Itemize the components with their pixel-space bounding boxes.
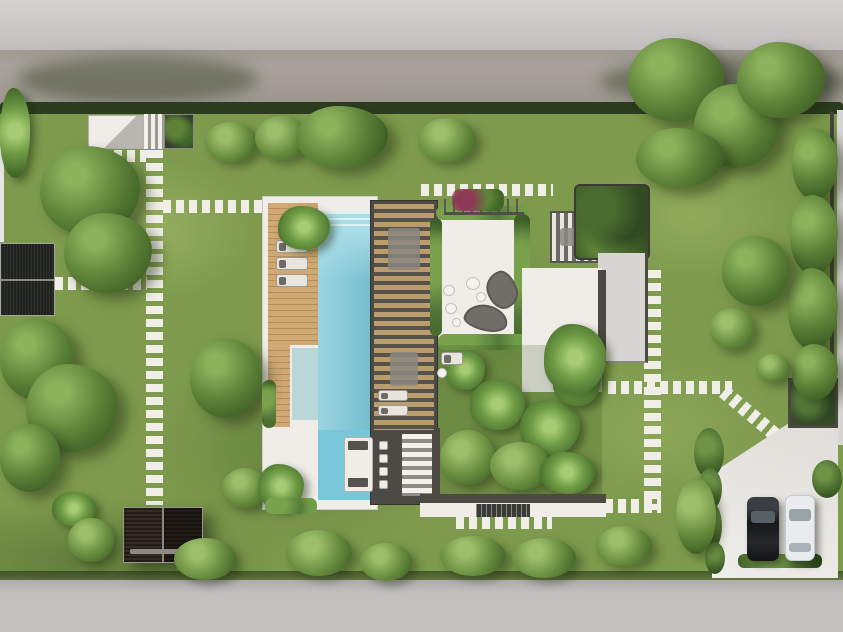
deck-lounger: [378, 405, 408, 416]
garden-stairs: [476, 504, 530, 517]
garden-chaise: [441, 352, 463, 365]
driveway-hedge: [812, 460, 842, 498]
bush: [756, 354, 790, 382]
bottom-bush: [512, 538, 576, 578]
pouf: [452, 318, 461, 327]
path-to-pool-deck: [163, 200, 265, 213]
dining-set-under-pergola: [388, 228, 420, 270]
bar-sink: [348, 441, 368, 450]
driveway-hedge: [705, 542, 725, 574]
path-below-walkway: [456, 516, 552, 529]
swimming-pool: [318, 212, 375, 444]
hedge-bush: [205, 122, 257, 162]
black-car-windshield: [751, 511, 775, 523]
pouf: [443, 285, 455, 296]
bottom-bush: [286, 530, 352, 576]
tree-shadow-on-road: [18, 56, 258, 102]
pool-edge-plants: [265, 498, 317, 514]
white-car-rear-window: [789, 543, 811, 552]
lounge-set-under-pergola: [390, 352, 418, 386]
bottom-bush: [596, 526, 652, 566]
deck-steps: [402, 434, 432, 496]
bottom-bush: [440, 536, 506, 576]
deck-lounger: [378, 390, 408, 401]
shallow-reflecting-pool: [292, 348, 320, 420]
entry-structure-roof: [88, 115, 144, 149]
hedge-bush: [418, 118, 476, 162]
courtyard-bush: [440, 430, 495, 485]
courtyard-palm: [540, 452, 595, 494]
terrace-plant-border-left: [430, 218, 442, 336]
top-sidewalk: [0, 0, 843, 51]
main-left-path: [146, 150, 163, 505]
courtyard-wall-left: [434, 428, 440, 504]
bush: [68, 518, 114, 562]
bar-stool: [379, 467, 388, 476]
bar-stool: [379, 441, 388, 450]
path-bottom-junction: [605, 499, 661, 513]
flower-planter: [452, 189, 504, 211]
path-to-driveway: [608, 381, 732, 394]
pool-palm: [278, 206, 330, 250]
pergola-divider: [1, 279, 54, 281]
driveway-bush: [676, 478, 716, 554]
patio-palm: [544, 324, 606, 394]
bar-grill: [348, 478, 368, 487]
sun-lounger: [276, 274, 308, 287]
green-roof-garden: [574, 184, 650, 260]
bar-stool: [379, 454, 388, 463]
sun-lounger: [276, 257, 308, 270]
entry-structure-planter: [164, 114, 194, 149]
bottom-bush: [360, 543, 412, 581]
garden-side-table: [437, 368, 447, 378]
courtyard-palm: [470, 380, 525, 430]
pool-edge-plants: [262, 380, 276, 428]
pouf: [445, 303, 457, 314]
black-car: [747, 497, 779, 561]
bottom-road: [0, 580, 843, 632]
edge-palm: [0, 88, 30, 178]
bar-stool: [379, 480, 388, 489]
white-car-windshield: [789, 509, 811, 521]
entry-structure-steps: [144, 114, 164, 149]
bottom-bush: [174, 538, 236, 580]
pouf: [466, 277, 480, 290]
pouf: [476, 292, 486, 302]
bush: [710, 308, 754, 350]
site-plan-rendering: [0, 0, 843, 632]
